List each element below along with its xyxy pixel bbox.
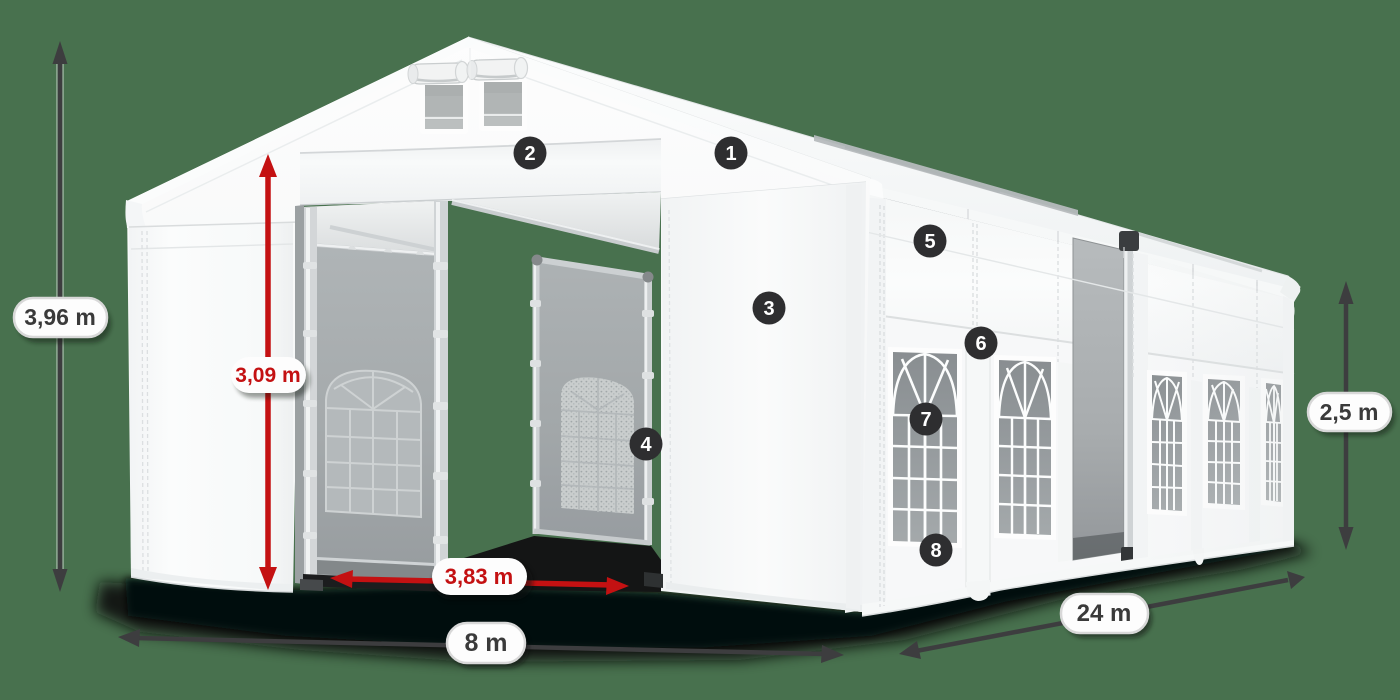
svg-text:3: 3 [763, 298, 774, 320]
svg-text:2,5 m: 2,5 m [1320, 399, 1379, 425]
svg-text:3,83 m: 3,83 m [445, 564, 514, 589]
svg-text:3,96 m: 3,96 m [24, 304, 96, 330]
svg-text:24 m: 24 m [1077, 600, 1132, 627]
svg-text:8: 8 [930, 540, 941, 562]
svg-text:3,09 m: 3,09 m [235, 364, 300, 387]
svg-text:4: 4 [640, 434, 652, 456]
svg-text:8 m: 8 m [464, 629, 507, 657]
svg-text:2: 2 [524, 143, 535, 165]
svg-text:1: 1 [725, 143, 736, 165]
svg-text:6: 6 [975, 333, 986, 355]
svg-text:5: 5 [924, 231, 935, 253]
svg-text:7: 7 [920, 409, 931, 431]
